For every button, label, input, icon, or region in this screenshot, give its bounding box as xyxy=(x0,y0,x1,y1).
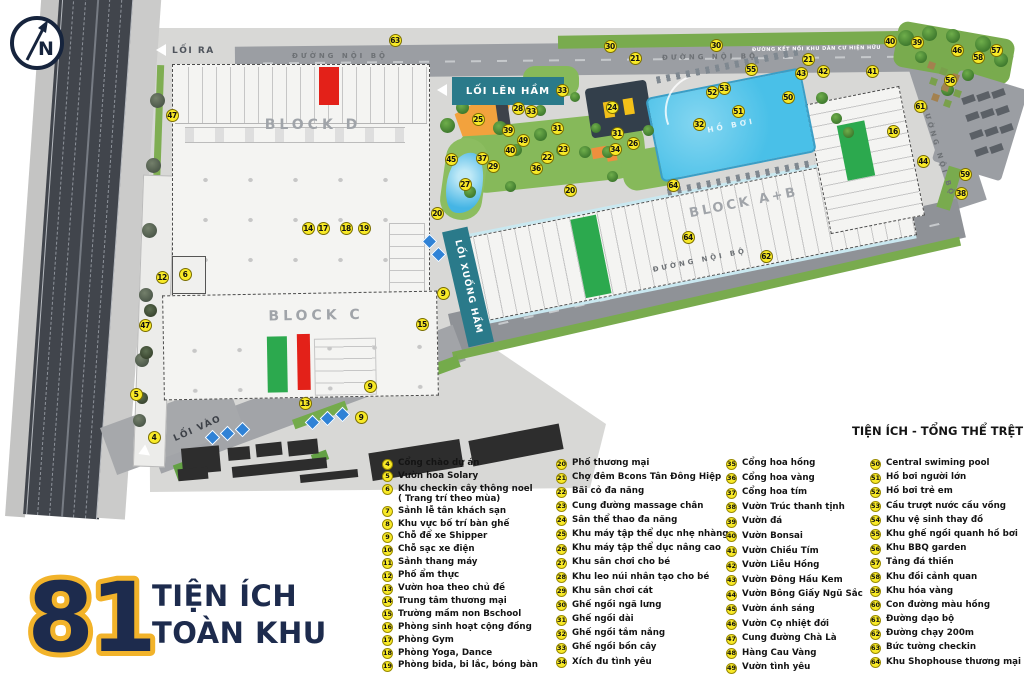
road-label: ĐƯỜNG NỘI BỘ xyxy=(662,52,758,62)
block-d-columns xyxy=(183,160,419,289)
map-marker-64: 64 xyxy=(682,231,695,244)
legend-number-badge: 45 xyxy=(726,604,737,615)
block-d-rooms xyxy=(389,223,425,295)
legend-number-badge: 15 xyxy=(382,609,393,620)
map-marker-19: 19 xyxy=(358,222,371,235)
legend-item-9: 9Chỗ để xe Shipper xyxy=(382,531,538,543)
legend-item-label: Vườn Cọ nhiệt đới xyxy=(742,619,829,629)
legend-item-53: 53Cầu trượt nước cầu vồng xyxy=(870,501,1021,513)
legend-item-label: Chợ đêm Bcons Tân Đông Hiệp xyxy=(572,472,721,482)
map-marker-38: 38 xyxy=(955,187,968,200)
legend-item-label: Khu hóa vàng xyxy=(886,586,953,596)
map-marker-9: 9 xyxy=(355,411,368,424)
legend-item-label: Bức tường checkin xyxy=(886,642,976,652)
map-marker-45: 45 xyxy=(445,153,458,166)
map-marker-20: 20 xyxy=(564,184,577,197)
map-marker-55: 55 xyxy=(745,63,758,76)
legend-item-16: 16Phòng sinh hoạt cộng đồng xyxy=(382,622,538,634)
tree xyxy=(922,26,937,41)
block-d-units xyxy=(175,67,427,124)
legend-number-badge: 30 xyxy=(556,600,567,611)
map-marker-59: 59 xyxy=(959,168,972,181)
legend-item-label: Ghế ngồi dài xyxy=(572,614,634,624)
legend-item-56: 56Khu BBQ garden xyxy=(870,543,1021,555)
map-marker-47: 47 xyxy=(166,109,179,122)
block-c-label: BLOCK C xyxy=(268,307,364,325)
legend-number-badge: 59 xyxy=(870,586,881,597)
block-c-elevator-core xyxy=(297,334,311,390)
map-marker-40: 40 xyxy=(504,144,517,157)
legend-number-badge: 12 xyxy=(382,571,393,582)
tree xyxy=(915,51,927,63)
legend-number-badge: 64 xyxy=(870,657,881,668)
legend-item-50: 50Central swiming pool xyxy=(870,458,1021,470)
legend-item-10: 10Chỗ sạc xe điện xyxy=(382,544,538,556)
map-marker-22: 22 xyxy=(541,151,554,164)
map-marker-32: 32 xyxy=(693,118,706,131)
legend-item-label: Khu vực bố trí bàn ghế xyxy=(398,519,509,529)
legend-number-badge: 60 xyxy=(870,600,881,611)
map-marker-61: 61 xyxy=(914,100,927,113)
legend-item-40: 40Vườn Bonsai xyxy=(726,531,863,543)
goal xyxy=(623,98,635,115)
legend-item-label: Cung đường massage chân xyxy=(572,501,703,511)
legend-number-badge: 55 xyxy=(870,529,881,540)
map-marker-62: 62 xyxy=(760,250,773,263)
tree xyxy=(975,36,991,52)
legend-heading: TIỆN ÍCH - TỔNG THỂ TRỆT xyxy=(852,424,1023,438)
legend-number-badge: 4 xyxy=(382,459,393,470)
legend-item-14: 14Trung tâm thương mại xyxy=(382,596,538,608)
map-marker-23: 23 xyxy=(557,143,570,156)
legend-item-34: 34Xích đu tình yêu xyxy=(556,657,728,669)
legend-item-label: Ghế ngồi bồn cây xyxy=(572,642,656,652)
map-marker-58: 58 xyxy=(972,51,985,64)
tree xyxy=(831,113,842,124)
map-marker-33: 33 xyxy=(525,105,538,118)
legend-item-24: 24Sân thể thao đa năng xyxy=(556,515,728,527)
legend-item-label: Khu sân chơi cho bé xyxy=(572,557,670,567)
block-c-green-core xyxy=(267,336,288,392)
legend-item-label: Đường dạo bộ xyxy=(886,614,954,624)
legend-number-badge: 48 xyxy=(726,648,737,659)
map-marker-63: 63 xyxy=(389,34,402,47)
map-marker-36: 36 xyxy=(530,162,543,175)
legend-number-badge: 33 xyxy=(556,643,567,654)
legend-number-badge: 26 xyxy=(556,544,567,555)
map-marker-12: 12 xyxy=(156,271,169,284)
poster-title-line2: TOÀN KHU xyxy=(152,615,327,652)
legend-number-badge: 57 xyxy=(870,558,881,569)
legend-number-badge: 13 xyxy=(382,584,393,595)
legend-item-label: Chỗ sạc xe điện xyxy=(398,544,475,554)
legend-number-badge: 61 xyxy=(870,615,881,626)
legend-item-label: Xích đu tình yêu xyxy=(572,657,652,667)
legend-item-label: Cung đường Chà Là xyxy=(742,633,837,643)
legend-item-label: Khu sân chơi cát xyxy=(572,586,653,596)
map-marker-30: 30 xyxy=(710,39,723,52)
poster-title-line1: TIỆN ÍCH xyxy=(152,578,327,615)
tree xyxy=(591,123,601,133)
map-marker-42: 42 xyxy=(817,65,830,78)
legend-number-badge: 56 xyxy=(870,544,881,555)
legend-item-23: 23Cung đường massage chân xyxy=(556,501,728,513)
legend-number-badge: 50 xyxy=(870,459,881,470)
legend-item-label: Vườn Bông Giấy Ngũ Sắc xyxy=(742,589,863,599)
legend-item-39: 39Vườn đá xyxy=(726,516,863,528)
legend-item-label: Sảnh lễ tân khách sạn xyxy=(398,506,506,516)
legend-number-badge: 32 xyxy=(556,629,567,640)
map-marker-29: 29 xyxy=(487,160,500,173)
map-marker-4: 4 xyxy=(148,431,161,444)
legend-item-label: Khu máy tập thể dục nâng cao xyxy=(572,543,721,553)
legend-item-38: 38Vườn Trúc thanh tịnh xyxy=(726,502,863,514)
map-marker-64: 64 xyxy=(667,179,680,192)
map-marker-31: 31 xyxy=(551,122,564,135)
legend-item-46: 46Vườn Cọ nhiệt đới xyxy=(726,619,863,631)
block-d: BLOCK D xyxy=(172,64,430,300)
map-marker-31: 31 xyxy=(611,127,624,140)
market-stall-roof xyxy=(255,442,282,458)
map-marker-50: 50 xyxy=(782,91,795,104)
map-marker-25: 25 xyxy=(472,113,485,126)
legend-item-label: Vườn hoa Solary xyxy=(398,471,478,481)
tree xyxy=(534,128,547,141)
legend-number-badge: 62 xyxy=(870,629,881,640)
tree xyxy=(133,414,146,427)
legend-item-52: 52Hồ bơi trẻ em xyxy=(870,486,1021,498)
legend-number-badge: 42 xyxy=(726,561,737,572)
ramp-up-banner: LỐI LÊN HẦM xyxy=(452,77,564,105)
legend-item-61: 61Đường dạo bộ xyxy=(870,614,1021,626)
legend-item-label: Chỗ để xe Shipper xyxy=(398,531,487,541)
map-marker-43: 43 xyxy=(795,67,808,80)
map-marker-21: 21 xyxy=(802,53,815,66)
exit-label: LỐI RA xyxy=(172,46,215,56)
legend-item-48: 48Hàng Cau Vàng xyxy=(726,648,863,660)
legend-number-badge: 24 xyxy=(556,515,567,526)
legend-item-label: Cổng hoa tím xyxy=(742,487,807,497)
legend-item-12: 12Phố ẩm thực xyxy=(382,570,538,582)
map-marker-9: 9 xyxy=(437,287,450,300)
legend-column-3: 35Cổng hoa hồng36Cổng hoa vàng37Cổng hoa… xyxy=(726,458,863,677)
road-label: ĐƯỜNG NỘI BỘ xyxy=(292,52,388,60)
legend-item-label: Vườn Liễu Hồng xyxy=(742,560,819,570)
legend-item-label: Hàng Cau Vàng xyxy=(742,648,817,658)
map-marker-49: 49 xyxy=(517,134,530,147)
legend-item-label: Vườn đá xyxy=(742,516,782,526)
legend-item-label: Vườn ánh sáng xyxy=(742,604,815,614)
legend-number-badge: 8 xyxy=(382,519,393,530)
legend-item-58: 58Khu đồi cảnh quan xyxy=(870,572,1021,584)
tree xyxy=(142,223,157,238)
legend-item-11: 11Sảnh thang máy xyxy=(382,557,538,569)
legend-number-badge: 25 xyxy=(556,529,567,540)
legend-item-8: 8Khu vực bố trí bàn ghế xyxy=(382,519,538,531)
legend-item-label: Trung tâm thương mại xyxy=(398,596,507,606)
map-marker-18: 18 xyxy=(340,222,353,235)
legend-number-badge: 29 xyxy=(556,586,567,597)
legend-item-label: Con đường màu hồng xyxy=(886,600,990,610)
legend-item-30: 30Ghế ngồi ngã lưng xyxy=(556,600,728,612)
map-marker-26: 26 xyxy=(627,137,640,150)
legend-number-badge: 28 xyxy=(556,572,567,583)
legend-item-label: Trường mầm non Bschool xyxy=(398,609,521,619)
legend-column-1: 4Cổng chào dự án5Vườn hoa Solary6Khu che… xyxy=(382,458,538,673)
tree xyxy=(440,118,455,133)
legend-item-7: 7Sảnh lễ tân khách sạn xyxy=(382,506,538,518)
map-marker-51: 51 xyxy=(732,105,745,118)
tree xyxy=(843,127,854,138)
map-marker-16: 16 xyxy=(887,125,900,138)
legend-item-60: 60Con đường màu hồng xyxy=(870,600,1021,612)
legend-number-badge: 37 xyxy=(726,488,737,499)
legend-number-badge: 31 xyxy=(556,615,567,626)
legend-item-37: 37Cổng hoa tím xyxy=(726,487,863,499)
legend-item-62: 62Đường chạy 200m xyxy=(870,628,1021,640)
legend-item-label: Cầu trượt nước cầu vồng xyxy=(886,501,1006,511)
legend-item-59: 59Khu hóa vàng xyxy=(870,586,1021,598)
legend-number-badge: 22 xyxy=(556,487,567,498)
legend-item-13: 13Vườn hoa theo chủ đề xyxy=(382,583,538,595)
map-marker-13: 13 xyxy=(299,397,312,410)
legend-item-51: 51Hồ bơi người lớn xyxy=(870,472,1021,484)
legend-item-35: 35Cổng hoa hồng xyxy=(726,458,863,470)
legend-number-badge: 20 xyxy=(556,459,567,470)
legend-item-label: Phố ẩm thực xyxy=(398,570,459,580)
map-marker-40: 40 xyxy=(884,35,897,48)
site-plan-poster: BLOCK D BLOCK C BLOCK A+B HỒ BƠI xyxy=(0,0,1024,692)
legend-item-label: Phòng bida, bi lắc, bóng bàn xyxy=(398,660,538,670)
legend-number-badge: 27 xyxy=(556,558,567,569)
legend-item-47: 47Cung đường Chà Là xyxy=(726,633,863,645)
legend-item-label: Khu BBQ garden xyxy=(886,543,966,553)
legend-item-label: Vườn Chiều Tím xyxy=(742,546,819,556)
map-marker-27: 27 xyxy=(459,178,472,191)
legend-item-label: Vườn Bonsai xyxy=(742,531,803,541)
legend-number-badge: 47 xyxy=(726,634,737,645)
map-marker-53: 53 xyxy=(718,82,731,95)
amenity-count: 81 xyxy=(26,554,156,674)
legend-item-label: Vườn Trúc thanh tịnh xyxy=(742,502,845,512)
legend-item-label: Cổng hoa hồng xyxy=(742,458,815,468)
legend-number-badge: 34 xyxy=(556,657,567,668)
legend-item-20: 20Phố thương mại xyxy=(556,458,728,470)
legend-item-57: 57Tảng đá thiền xyxy=(870,557,1021,569)
legend-number-badge: 51 xyxy=(870,473,881,484)
legend-item-21: 21Chợ đêm Bcons Tân Đông Hiệp xyxy=(556,472,728,484)
legend-item-label: Vườn Đông Hầu Kem xyxy=(742,575,843,585)
legend-item-41: 41Vườn Chiều Tím xyxy=(726,546,863,558)
legend-item-17: 17Phòng Gym xyxy=(382,635,538,647)
legend-number-badge: 35 xyxy=(726,459,737,470)
legend-item-55: 55Khu ghế ngồi quanh hồ bơi xyxy=(870,529,1021,541)
legend-item-label: Vườn hoa theo chủ đề xyxy=(398,583,505,593)
legend-item-label: Tảng đá thiền xyxy=(886,557,954,567)
legend-item-label: Ghế ngồi ngã lưng xyxy=(572,600,661,610)
legend-item-63: 63Bức tường checkin xyxy=(870,642,1021,654)
legend-number-badge: 10 xyxy=(382,545,393,556)
map-marker-37: 37 xyxy=(476,152,489,165)
legend-item-label: Cổng chào dự án xyxy=(398,458,479,468)
map-marker-17: 17 xyxy=(317,222,330,235)
legend-number-badge: 17 xyxy=(382,635,393,646)
tree xyxy=(946,29,960,43)
tree xyxy=(150,93,165,108)
legend-item-27: 27Khu sân chơi cho bé xyxy=(556,557,728,569)
legend-item-label: Central swiming pool xyxy=(886,458,990,468)
legend-item-15: 15Trường mầm non Bschool xyxy=(382,609,538,621)
map-marker-15: 15 xyxy=(416,318,429,331)
block-d-elevator-core xyxy=(319,67,339,105)
exit-arrow-icon xyxy=(156,44,166,56)
legend-item-22: 22Bãi cỏ đa năng xyxy=(556,486,728,498)
tree xyxy=(643,125,654,136)
legend-item-36: 36Cổng hoa vàng xyxy=(726,473,863,485)
map-marker-39: 39 xyxy=(502,124,515,137)
legend-number-badge: 44 xyxy=(726,590,737,601)
legend-item-label: Khu máy tập thể dục nhẹ nhàng xyxy=(572,529,728,539)
map-marker-34: 34 xyxy=(609,143,622,156)
market-stall-roof xyxy=(287,438,318,456)
legend-number-badge: 46 xyxy=(726,619,737,630)
legend-item-label: Phố thương mại xyxy=(572,458,649,468)
ramp-up-arrow-icon xyxy=(437,84,447,96)
legend-item-label: Đường chạy 200m xyxy=(886,628,974,638)
legend-item-28: 28Khu leo núi nhân tạo cho bé xyxy=(556,572,728,584)
legend-item-5: 5Vườn hoa Solary xyxy=(382,471,538,483)
map-marker-33: 33 xyxy=(556,84,569,97)
legend-column-4: 50Central swiming pool51Hồ bơi người lớn… xyxy=(870,458,1021,671)
map-marker-28: 28 xyxy=(512,102,525,115)
map-marker-24: 24 xyxy=(606,101,619,114)
legend-number-badge: 53 xyxy=(870,501,881,512)
legend-item-label: Khu đồi cảnh quan xyxy=(886,572,977,582)
svg-text:N: N xyxy=(38,38,54,60)
compass-icon: N xyxy=(8,14,66,72)
tree xyxy=(607,171,618,182)
legend-item-33: 33Ghế ngồi bồn cây xyxy=(556,642,728,654)
legend-item-label: Vườn tình yêu xyxy=(742,662,810,672)
tree xyxy=(816,92,828,104)
map-marker-21: 21 xyxy=(629,52,642,65)
legend-number-badge: 19 xyxy=(382,661,393,672)
map-marker-14: 14 xyxy=(302,222,315,235)
legend-item-label: Hồ bơi trẻ em xyxy=(886,486,953,496)
legend-number-badge: 41 xyxy=(726,546,737,557)
map-marker-5: 5 xyxy=(130,388,143,401)
legend-number-badge: 39 xyxy=(726,517,737,528)
map-marker-52: 52 xyxy=(706,86,719,99)
legend-number-badge: 11 xyxy=(382,558,393,569)
legend-item-19: 19Phòng bida, bi lắc, bóng bàn xyxy=(382,660,538,672)
map-marker-56: 56 xyxy=(944,74,957,87)
tree xyxy=(146,158,161,173)
legend-item-54: 54Khu vệ sinh thay đồ xyxy=(870,515,1021,527)
legend-number-badge: 63 xyxy=(870,643,881,654)
map-marker-46: 46 xyxy=(951,44,964,57)
legend-item-32: 32Ghế ngồi tắm nắng xyxy=(556,628,728,640)
legend-item-label: Ghế ngồi tắm nắng xyxy=(572,628,665,638)
legend-item-label: Bãi cỏ đa năng xyxy=(572,486,644,496)
palm-tree xyxy=(140,346,153,359)
tree xyxy=(505,181,516,192)
map-marker-6: 6 xyxy=(179,268,192,281)
legend-number-badge: 49 xyxy=(726,663,737,674)
legend-item-label: Phòng sinh hoạt cộng đồng xyxy=(398,622,532,632)
block-c: BLOCK C xyxy=(162,291,439,401)
map-marker-47: 47 xyxy=(139,319,152,332)
legend-item-label: Khu Shophouse thương mại xyxy=(886,657,1021,667)
poster-title: TIỆN ÍCH TOÀN KHU xyxy=(152,578,327,652)
map-marker-57: 57 xyxy=(990,44,1003,57)
legend-number-badge: 5 xyxy=(382,471,393,482)
legend-item-label: Khu leo núi nhân tạo cho bé xyxy=(572,572,709,582)
legend-item-label: Sảnh thang máy xyxy=(398,557,477,567)
legend-item-42: 42Vườn Liễu Hồng xyxy=(726,560,863,572)
legend-item-label: Sân thể thao đa năng xyxy=(572,515,677,525)
legend-item-4: 4Cổng chào dự án xyxy=(382,458,538,470)
map-marker-44: 44 xyxy=(917,155,930,168)
legend-item-43: 43Vườn Đông Hầu Kem xyxy=(726,575,863,587)
palm-tree xyxy=(144,304,157,317)
legend-number-badge: 58 xyxy=(870,572,881,583)
map-marker-9: 9 xyxy=(364,380,377,393)
legend-number-badge: 6 xyxy=(382,484,393,495)
legend-number-badge: 7 xyxy=(382,506,393,517)
market-stall-roof xyxy=(227,446,250,461)
legend-item-label: Phòng Gym xyxy=(398,635,454,645)
legend-item-label: Khu vệ sinh thay đồ xyxy=(886,515,983,525)
map-marker-30: 30 xyxy=(604,40,617,53)
legend-item-label: Khu checkin cây thông noel ( Trang trí t… xyxy=(398,484,533,505)
legend-item-label: Cổng hoa vàng xyxy=(742,473,815,483)
tree xyxy=(570,92,580,102)
legend-number-badge: 36 xyxy=(726,473,737,484)
legend-number-badge: 16 xyxy=(382,622,393,633)
block-d-label: BLOCK D xyxy=(243,117,383,133)
legend-item-26: 26Khu máy tập thể dục nâng cao xyxy=(556,543,728,555)
legend-item-44: 44Vườn Bông Giấy Ngũ Sắc xyxy=(726,589,863,601)
legend-item-31: 31Ghế ngồi dài xyxy=(556,614,728,626)
legend-item-label: Phòng Yoga, Dance xyxy=(398,648,492,658)
legend-column-2: 20Phố thương mại21Chợ đêm Bcons Tân Đông… xyxy=(556,458,728,671)
legend-item-45: 45Vườn ánh sáng xyxy=(726,604,863,616)
map-marker-39: 39 xyxy=(911,36,924,49)
legend-item-18: 18Phòng Yoga, Dance xyxy=(382,648,538,660)
legend-number-badge: 18 xyxy=(382,648,393,659)
map-marker-41: 41 xyxy=(866,65,879,78)
legend-item-29: 29Khu sân chơi cát xyxy=(556,586,728,598)
tree xyxy=(579,146,591,158)
legend-number-badge: 40 xyxy=(726,531,737,542)
legend-item-49: 49Vườn tình yêu xyxy=(726,662,863,674)
svg-text:81: 81 xyxy=(27,562,153,674)
tree xyxy=(139,288,153,302)
legend-number-badge: 23 xyxy=(556,501,567,512)
legend-number-badge: 38 xyxy=(726,502,737,513)
legend-number-badge: 43 xyxy=(726,575,737,586)
legend-item-label: Khu ghế ngồi quanh hồ bơi xyxy=(886,529,1018,539)
legend-number-badge: 14 xyxy=(382,596,393,607)
legend-number-badge: 21 xyxy=(556,473,567,484)
legend-item-label: Hồ bơi người lớn xyxy=(886,472,966,482)
map-marker-20: 20 xyxy=(431,207,444,220)
legend-number-badge: 54 xyxy=(870,515,881,526)
tree xyxy=(962,69,974,81)
legend-item-64: 64Khu Shophouse thương mại xyxy=(870,657,1021,669)
legend-number-badge: 52 xyxy=(870,487,881,498)
